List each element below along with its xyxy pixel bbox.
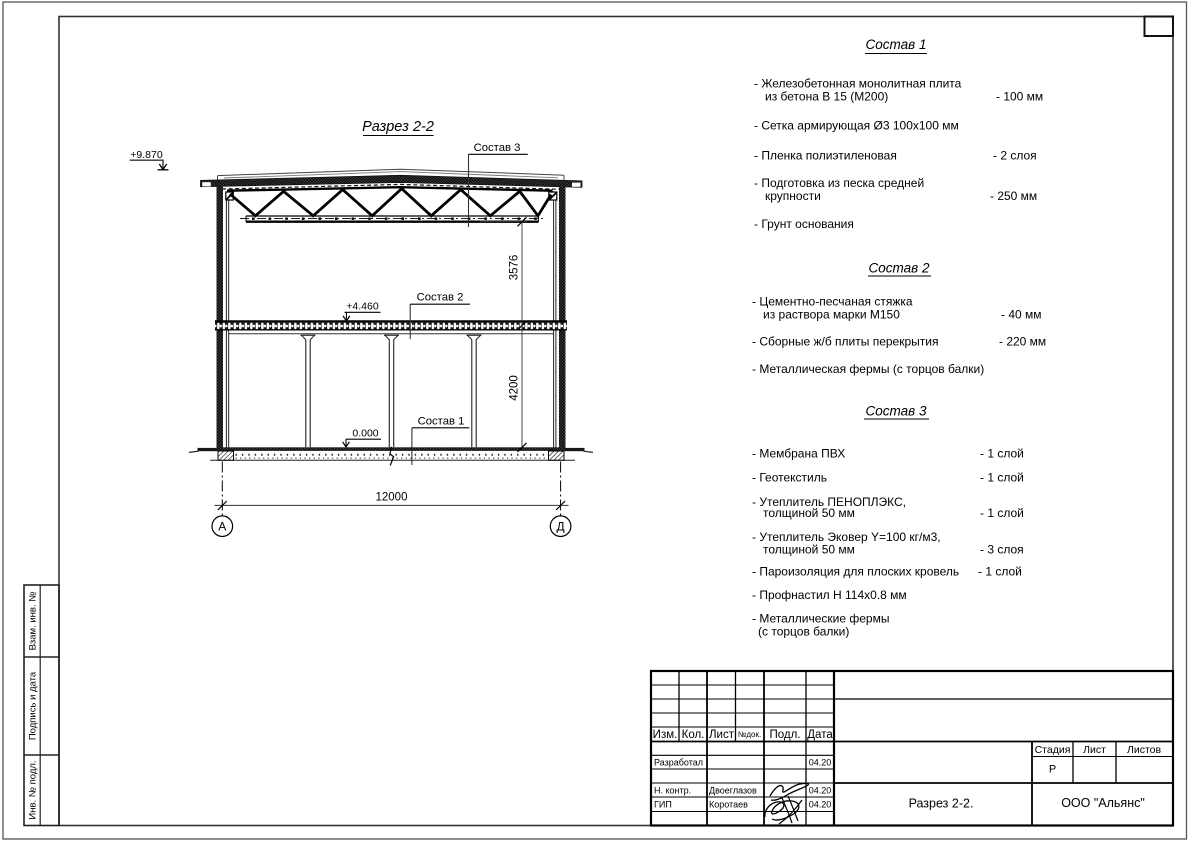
svg-text:04.20: 04.20 xyxy=(809,758,832,768)
svg-text:- Геотекстиль: - Геотекстиль xyxy=(752,471,827,485)
svg-text:Взам. инв. №: Взам. инв. № xyxy=(28,592,39,651)
svg-text:+4.460: +4.460 xyxy=(346,301,379,313)
svg-text:04.20: 04.20 xyxy=(809,786,832,796)
svg-text:Состав 3: Состав 3 xyxy=(866,404,927,419)
svg-text:4200: 4200 xyxy=(509,375,521,401)
svg-text:Разработал: Разработал xyxy=(654,758,703,768)
svg-text:Состав 1: Состав 1 xyxy=(418,416,465,428)
svg-text:- Железобетонная монолитная п: - Железобетонная монолитная плита xyxy=(754,77,962,91)
svg-text:- Пароизоляция для плоских кро: - Пароизоляция для плоских кровель xyxy=(752,565,959,579)
svg-text:- Грунт основания: - Грунт основания xyxy=(754,217,854,231)
svg-text:Состав 2: Состав 2 xyxy=(417,292,464,304)
svg-text:Коротаев: Коротаев xyxy=(709,800,748,810)
svg-text:ООО "Альянс": ООО "Альянс" xyxy=(1061,796,1145,810)
svg-text:0.000: 0.000 xyxy=(352,428,378,440)
svg-text:- Подготовка из песка средней: - Подготовка из песка средней xyxy=(754,176,924,190)
svg-text:04.20: 04.20 xyxy=(809,800,832,810)
svg-text:Д: Д xyxy=(557,520,565,534)
svg-text:Подпись и дата: Подпись и дата xyxy=(28,671,39,740)
svg-text:- 220 мм: - 220 мм xyxy=(999,335,1046,349)
svg-text:№док.: №док. xyxy=(738,730,761,739)
svg-text:- Сетка армирующая Ø3 100х100: - Сетка армирующая Ø3 100х100 мм xyxy=(754,119,959,133)
svg-text:из раствора марки М150: из раствора марки М150 xyxy=(763,308,900,322)
svg-text:Состав 1: Состав 1 xyxy=(866,37,927,52)
svg-text:Дата: Дата xyxy=(807,729,833,741)
svg-text:- Сборные ж/б плиты перекрытия: - Сборные ж/б плиты перекрытия xyxy=(752,335,938,349)
svg-text:Р: Р xyxy=(1049,764,1056,776)
svg-text:- 1 слой: - 1 слой xyxy=(980,447,1024,461)
svg-text:толщиной 50 мм: толщиной 50 мм xyxy=(763,506,855,520)
svg-text:3576: 3576 xyxy=(509,255,521,281)
svg-text:Состав 2: Состав 2 xyxy=(869,261,930,276)
svg-text:- 1 слой: - 1 слой xyxy=(978,565,1022,579)
svg-text:- Профнастил Н 114х0.8 мм: - Профнастил Н 114х0.8 мм xyxy=(752,588,907,602)
svg-text:+9.870: +9.870 xyxy=(130,149,163,161)
svg-text:- Пленка полиэтиленовая: - Пленка полиэтиленовая xyxy=(754,149,897,163)
svg-text:Состав 3: Состав 3 xyxy=(474,142,521,154)
svg-text:Инв. № подл.: Инв. № подл. xyxy=(28,760,39,819)
svg-text:крупности: крупности xyxy=(765,189,821,203)
svg-text:- 1 слой: - 1 слой xyxy=(980,471,1024,485)
svg-text:Н. контр.: Н. контр. xyxy=(654,786,691,796)
svg-text:- 3 слоя: - 3 слоя xyxy=(980,543,1024,557)
svg-text:- Металлическая фермы (с торцо: - Металлическая фермы (с торцов балки) xyxy=(752,362,984,376)
svg-text:- Цементно-песчаная стяжка: - Цементно-песчаная стяжка xyxy=(752,295,913,309)
svg-text:- Мембрана ПВХ: - Мембрана ПВХ xyxy=(752,447,845,461)
svg-text:- 2 слоя: - 2 слоя xyxy=(993,149,1037,163)
svg-text:- 250 мм: - 250 мм xyxy=(990,189,1037,203)
svg-text:Лист: Лист xyxy=(709,729,735,741)
svg-text:Листов: Листов xyxy=(1127,744,1162,756)
svg-text:толщиной 50 мм: толщиной 50 мм xyxy=(763,543,855,557)
svg-text:Стадия: Стадия xyxy=(1035,744,1071,756)
svg-text:Лист: Лист xyxy=(1083,744,1106,756)
svg-text:Кол.: Кол. xyxy=(682,729,705,741)
svg-text:Разрез 2-2.: Разрез 2-2. xyxy=(909,797,974,811)
svg-text:- Металлические фермы: - Металлические фермы xyxy=(752,612,889,626)
svg-text:12000: 12000 xyxy=(376,492,408,504)
svg-text:- 1 слой: - 1 слой xyxy=(980,506,1024,520)
svg-text:ГИП: ГИП xyxy=(654,800,672,810)
svg-text:из бетона В 15 (М200): из бетона В 15 (М200) xyxy=(765,90,888,104)
svg-text:(с торцов балки): (с торцов балки) xyxy=(758,625,849,639)
svg-text:- 100 мм: - 100 мм xyxy=(996,90,1043,104)
svg-text:Изм.: Изм. xyxy=(653,729,678,741)
svg-text:Двоеглазов: Двоеглазов xyxy=(709,786,757,796)
svg-text:- 40 мм: - 40 мм xyxy=(1001,308,1042,322)
svg-text:Подл.: Подл. xyxy=(769,729,800,741)
svg-text:А: А xyxy=(218,520,226,534)
svg-text:Разрез 2-2: Разрез 2-2 xyxy=(362,119,434,135)
